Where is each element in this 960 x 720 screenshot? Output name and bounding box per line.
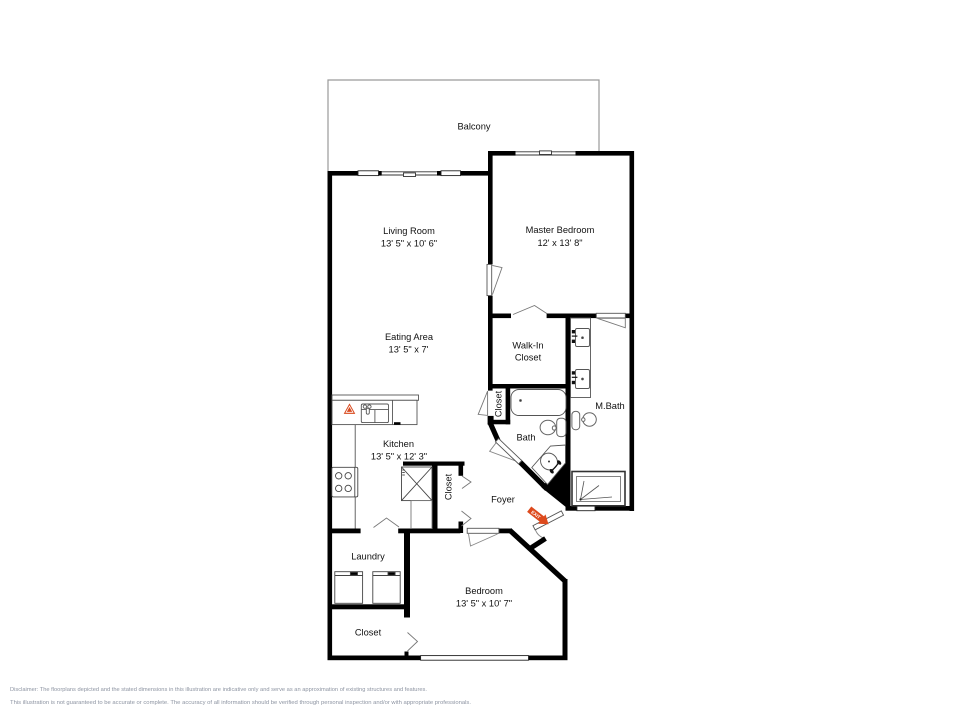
svg-text:13' 5" x 7': 13' 5" x 7' (389, 345, 429, 355)
svg-text:Laundry: Laundry (351, 552, 385, 562)
svg-text:Kitchen: Kitchen (383, 439, 414, 449)
svg-text:Foyer: Foyer (491, 495, 515, 505)
svg-text:Closet: Closet (494, 390, 504, 417)
svg-text:12' x 13' 8": 12' x 13' 8" (537, 238, 582, 248)
svg-text:Disclaimer: The floorplans dep: Disclaimer: The floorplans depicted and … (10, 687, 427, 693)
svg-text:Closet: Closet (515, 353, 542, 363)
svg-text:This illustration is not guara: This illustration is not guaranteed to b… (10, 700, 471, 706)
svg-text:Eating Area: Eating Area (385, 332, 434, 342)
svg-text:Balcony: Balcony (457, 122, 490, 132)
svg-text:Master Bedroom: Master Bedroom (526, 225, 595, 235)
svg-text:Walk-In: Walk-In (512, 341, 543, 351)
svg-text:Bedroom: Bedroom (465, 586, 503, 596)
svg-text:13' 5" x 10' 7": 13' 5" x 10' 7" (456, 599, 512, 609)
svg-text:Closet: Closet (444, 473, 454, 500)
svg-text:Living Room: Living Room (383, 226, 435, 236)
svg-text:Closet: Closet (355, 628, 382, 638)
svg-text:M.Bath: M.Bath (595, 401, 624, 411)
svg-text:13' 5" x 10' 6": 13' 5" x 10' 6" (381, 239, 437, 249)
svg-text:13' 5" x 12' 3": 13' 5" x 12' 3" (371, 452, 427, 462)
svg-text:Bath: Bath (516, 433, 535, 443)
